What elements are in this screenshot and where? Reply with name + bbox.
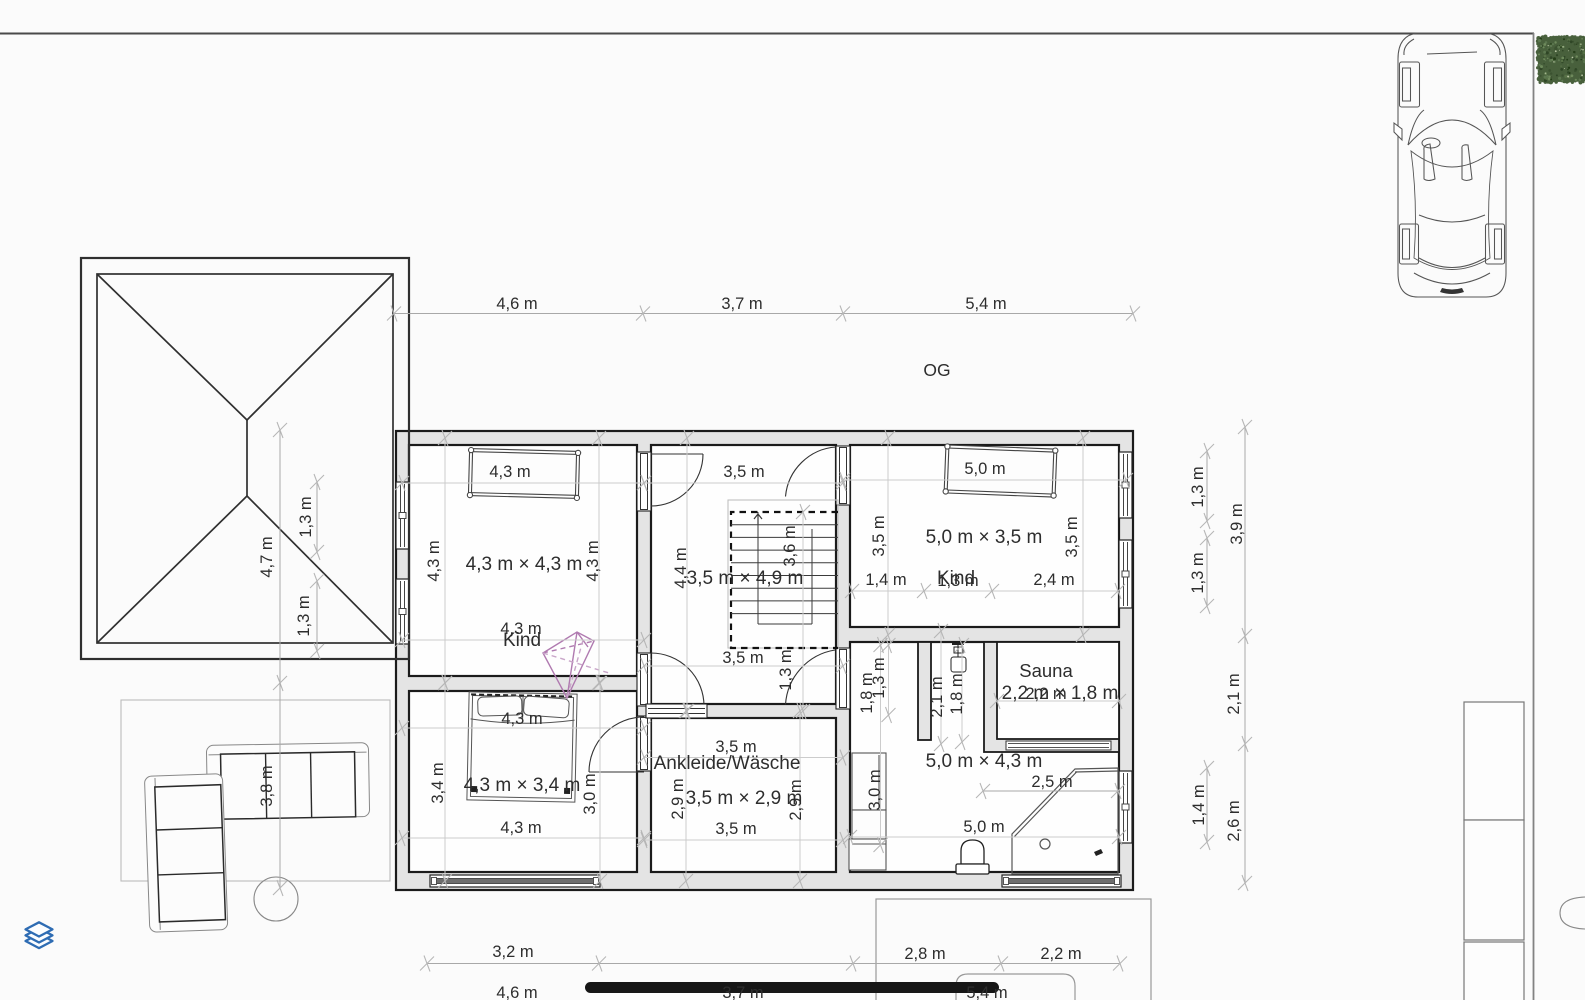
svg-text:1,3 m: 1,3 m	[1189, 466, 1207, 507]
svg-text:1,3 m: 1,3 m	[777, 649, 795, 690]
svg-text:2,4 m: 2,4 m	[1033, 571, 1074, 589]
svg-text:1,3 m: 1,3 m	[1189, 552, 1207, 593]
svg-text:4,3 m: 4,3 m	[501, 710, 542, 728]
svg-text:2,6 m: 2,6 m	[1225, 800, 1243, 841]
svg-text:3,0 m: 3,0 m	[581, 773, 599, 814]
svg-text:3,8 m: 3,8 m	[258, 765, 276, 806]
svg-text:5,4 m: 5,4 m	[966, 984, 1007, 1000]
svg-text:3,7 m: 3,7 m	[721, 295, 762, 313]
svg-text:5,0 m: 5,0 m	[964, 460, 1005, 478]
svg-text:1,3 m: 1,3 m	[297, 496, 315, 537]
svg-text:3,5 m: 3,5 m	[870, 515, 888, 556]
svg-text:3,6 m: 3,6 m	[781, 525, 799, 566]
svg-text:1,3 m: 1,3 m	[870, 657, 888, 698]
svg-text:Kind: Kind	[503, 630, 541, 651]
svg-text:Kind: Kind	[937, 568, 975, 589]
svg-text:4,3 m × 4,3 m: 4,3 m × 4,3 m	[466, 554, 583, 575]
svg-text:3,5 m × 2,9 m: 3,5 m × 2,9 m	[686, 788, 803, 809]
svg-text:4,3 m: 4,3 m	[489, 463, 530, 481]
svg-text:2,9 m: 2,9 m	[669, 778, 687, 819]
svg-text:1,8 m: 1,8 m	[948, 673, 966, 714]
svg-text:4,3 m × 3,4 m: 4,3 m × 3,4 m	[464, 775, 581, 796]
svg-text:4,3 m: 4,3 m	[425, 540, 443, 581]
svg-text:4,7 m: 4,7 m	[258, 536, 276, 577]
svg-text:1,4 m: 1,4 m	[1190, 784, 1208, 825]
svg-text:Sauna: Sauna	[1019, 660, 1073, 681]
svg-text:2,5 m: 2,5 m	[1031, 773, 1072, 791]
svg-text:3,5 m: 3,5 m	[723, 463, 764, 481]
svg-text:3,5 m × 4,9 m: 3,5 m × 4,9 m	[687, 568, 804, 589]
svg-text:3,4 m: 3,4 m	[429, 762, 447, 803]
svg-text:5,4 m: 5,4 m	[965, 295, 1006, 313]
svg-text:3,5 m: 3,5 m	[715, 820, 756, 838]
svg-text:2,2 m: 2,2 m	[1040, 945, 1081, 963]
svg-text:5,0 m × 3,5 m: 5,0 m × 3,5 m	[926, 527, 1043, 548]
svg-text:3,5 m: 3,5 m	[1063, 516, 1081, 557]
svg-text:1,3 m: 1,3 m	[295, 595, 313, 636]
svg-text:3,7 m: 3,7 m	[722, 984, 763, 1000]
svg-text:Ankleide/Wäsche: Ankleide/Wäsche	[654, 753, 801, 774]
svg-text:2,2 m × 1,8 m: 2,2 m × 1,8 m	[1002, 683, 1119, 704]
svg-text:3,2 m: 3,2 m	[492, 943, 533, 961]
svg-text:4,3 m: 4,3 m	[584, 540, 602, 581]
svg-text:4,6 m: 4,6 m	[496, 984, 537, 1000]
svg-text:5,0 m: 5,0 m	[963, 818, 1004, 836]
svg-text:3,5 m: 3,5 m	[722, 649, 763, 667]
svg-text:3,0 m: 3,0 m	[866, 769, 884, 810]
svg-text:1,4 m: 1,4 m	[865, 571, 906, 589]
svg-text:2,1 m: 2,1 m	[1225, 673, 1243, 714]
svg-text:4,3 m: 4,3 m	[500, 819, 541, 837]
svg-text:OG: OG	[923, 360, 950, 380]
svg-text:3,9 m: 3,9 m	[1228, 503, 1246, 544]
svg-text:4,6 m: 4,6 m	[496, 295, 537, 313]
svg-text:2,8 m: 2,8 m	[904, 945, 945, 963]
svg-text:2,1 m: 2,1 m	[928, 676, 946, 717]
svg-text:5,0 m × 4,3 m: 5,0 m × 4,3 m	[926, 751, 1043, 772]
